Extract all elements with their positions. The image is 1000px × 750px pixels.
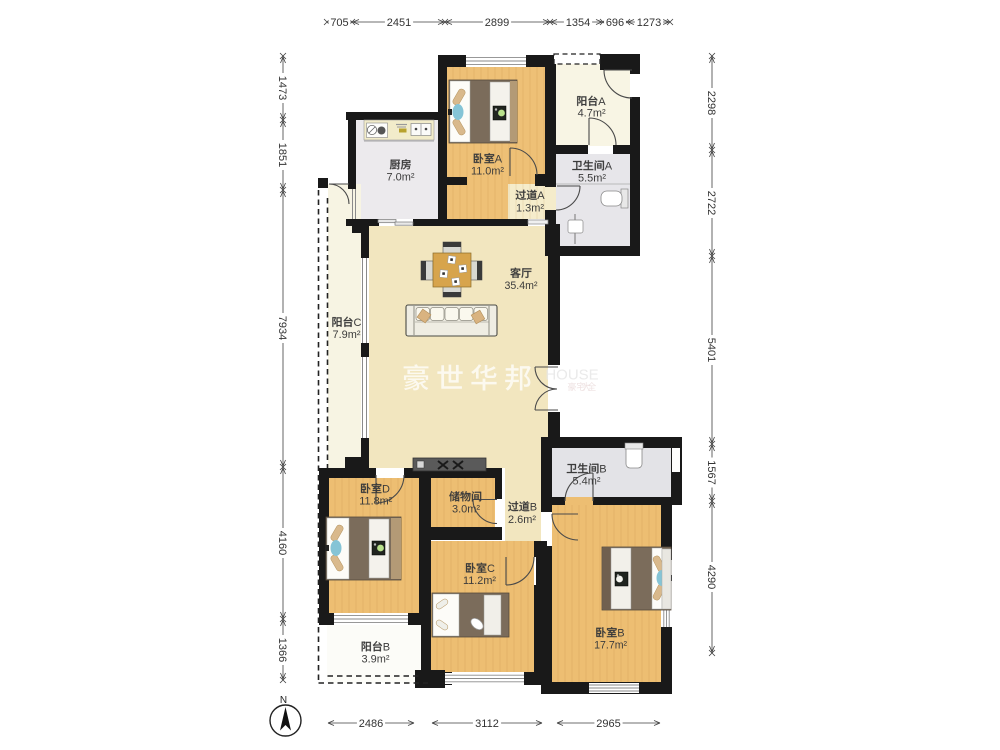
svg-text:B: B <box>530 502 537 514</box>
svg-text:1567: 1567 <box>705 460 717 484</box>
svg-text:A: A <box>495 154 503 166</box>
svg-text:696: 696 <box>606 17 624 29</box>
svg-text:2722: 2722 <box>705 191 717 215</box>
svg-text:11.8m²: 11.8m² <box>359 495 392 507</box>
svg-text:1354: 1354 <box>566 17 590 29</box>
svg-text:2486: 2486 <box>359 718 383 730</box>
svg-text:B: B <box>383 642 390 654</box>
svg-text:1.3m²: 1.3m² <box>516 202 544 214</box>
svg-text:1273: 1273 <box>637 17 661 29</box>
svg-text:3112: 3112 <box>475 718 499 730</box>
svg-text:A: A <box>537 190 545 202</box>
svg-text:2.6m²: 2.6m² <box>508 514 536 526</box>
svg-text:5401: 5401 <box>705 338 717 362</box>
svg-text:7.0m²: 7.0m² <box>387 172 415 184</box>
svg-text:C: C <box>487 563 495 575</box>
svg-text:1473: 1473 <box>276 76 288 100</box>
svg-text:3.0m²: 3.0m² <box>452 503 480 515</box>
svg-text:705: 705 <box>330 17 348 29</box>
svg-text:A: A <box>605 161 613 173</box>
svg-text:3.9m²: 3.9m² <box>362 653 390 665</box>
svg-text:4290: 4290 <box>705 565 717 589</box>
svg-text:B: B <box>599 464 606 476</box>
svg-text:5.5m²: 5.5m² <box>578 172 606 184</box>
svg-text:5.4m²: 5.4m² <box>573 475 601 487</box>
svg-text:2451: 2451 <box>387 17 411 29</box>
svg-text:D: D <box>382 484 390 496</box>
svg-text:全: 全 <box>587 381 596 392</box>
svg-text:B: B <box>617 628 624 640</box>
svg-text:2965: 2965 <box>596 718 620 730</box>
svg-text:17.7m²: 17.7m² <box>594 639 627 651</box>
svg-text:N: N <box>280 695 287 706</box>
svg-text:HOUSE: HOUSE <box>545 366 598 383</box>
svg-text:35.4m²: 35.4m² <box>505 280 538 292</box>
svg-text:2298: 2298 <box>705 91 717 115</box>
svg-text:7934: 7934 <box>276 316 288 340</box>
svg-text:C: C <box>354 317 362 329</box>
svg-text:1851: 1851 <box>276 143 288 167</box>
svg-text:11.2m²: 11.2m² <box>463 575 496 587</box>
svg-text:4.7m²: 4.7m² <box>578 108 606 120</box>
svg-text:7.9m²: 7.9m² <box>333 329 361 341</box>
svg-text:4160: 4160 <box>276 531 288 555</box>
svg-text:1366: 1366 <box>276 638 288 662</box>
svg-text:11.0m²: 11.0m² <box>471 165 504 177</box>
svg-text:A: A <box>598 96 606 108</box>
svg-text:2899: 2899 <box>485 17 509 29</box>
